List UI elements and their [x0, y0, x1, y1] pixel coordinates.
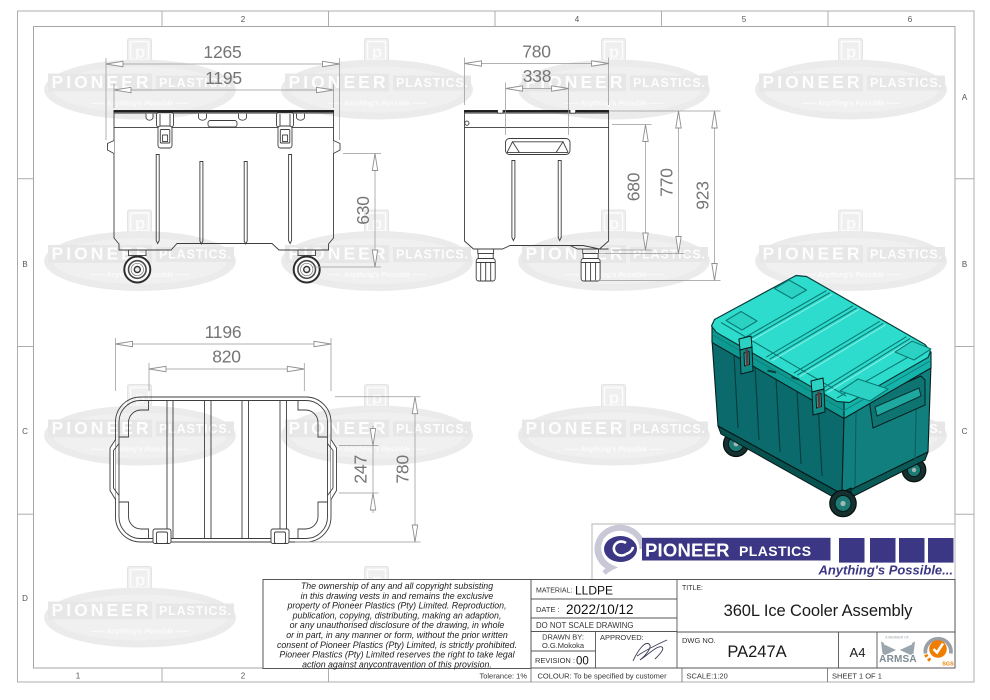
svg-text:2: 2: [241, 15, 246, 24]
svg-text:PIONEER: PIONEER: [645, 540, 730, 561]
svg-text:MATERIAL:: MATERIAL:: [536, 588, 572, 595]
svg-text:2022/10/12: 2022/10/12: [566, 602, 634, 617]
svg-text:780: 780: [522, 42, 551, 62]
svg-text:action against anycontraventio: action against anycontravention of this …: [302, 659, 492, 669]
svg-text:1196: 1196: [205, 322, 242, 342]
svg-text:APPROVED:: APPROVED:: [600, 633, 644, 642]
svg-text:A4: A4: [850, 645, 866, 660]
svg-text:Anything's Possible...: Anything's Possible...: [817, 563, 953, 578]
svg-text:TITLE:: TITLE:: [682, 585, 703, 592]
svg-text:820: 820: [212, 347, 241, 367]
svg-text:680: 680: [624, 172, 644, 201]
svg-text:DATE :: DATE :: [536, 605, 560, 614]
svg-text:publication, copying, distribu: publication, copying, distributing, maki…: [292, 610, 502, 620]
svg-text:D: D: [22, 594, 28, 603]
svg-text:4: 4: [575, 15, 580, 24]
svg-text:923: 923: [693, 181, 713, 210]
svg-text:1: 1: [76, 672, 81, 681]
svg-text:C: C: [962, 427, 968, 436]
svg-text:or any unauthorised disclosure: or any unauthorised disclosure of the dr…: [290, 620, 505, 630]
svg-text:property of Pioneer Plastics (: property of Pioneer Plastics (Pty) Limit…: [286, 601, 506, 611]
svg-text:in this drawing vests in and r: in this drawing vests in and remains the…: [301, 591, 494, 601]
svg-text:770: 770: [657, 168, 677, 197]
svg-text:PLASTICS: PLASTICS: [739, 543, 811, 559]
svg-text:O.G.Mokoka: O.G.Mokoka: [542, 641, 585, 650]
svg-text:Pioneer Plastics (Pty) Limited: Pioneer Plastics (Pty) Limited reserves …: [279, 650, 515, 660]
svg-text:REVISION :: REVISION :: [535, 656, 575, 665]
svg-text:ARMSA: ARMSA: [879, 654, 917, 665]
svg-text:B: B: [962, 260, 967, 269]
svg-text:B: B: [22, 260, 27, 269]
svg-text:2: 2: [241, 672, 246, 681]
svg-text:A MEMBER OF :: A MEMBER OF :: [885, 636, 910, 640]
svg-text:COLOUR: To be specified by cus: COLOUR: To be specified by customer: [538, 672, 668, 681]
svg-text:338: 338: [523, 66, 552, 86]
svg-text:247: 247: [351, 455, 371, 484]
svg-text:DWG NO.: DWG NO.: [682, 636, 716, 645]
svg-text:630: 630: [353, 196, 373, 225]
svg-text:360L Ice Cooler Assembly: 360L Ice Cooler Assembly: [724, 602, 914, 620]
svg-text:DO NOT SCALE DRAWING: DO NOT SCALE DRAWING: [536, 621, 633, 630]
svg-text:6: 6: [908, 15, 913, 24]
svg-text:PA247A: PA247A: [727, 643, 786, 661]
svg-text:A: A: [962, 93, 968, 102]
svg-text:The ownership of any and all c: The ownership of any and all copyright s…: [301, 581, 493, 591]
svg-text:1195: 1195: [205, 68, 242, 88]
svg-text:00: 00: [576, 656, 589, 668]
svg-text:780: 780: [393, 455, 413, 484]
svg-text:Tolerance: 1%: Tolerance: 1%: [479, 672, 527, 681]
svg-text:or in part, in any manner or f: or in part, in any manner or form, witho…: [286, 630, 508, 640]
svg-text:C: C: [22, 427, 28, 436]
svg-text:1265: 1265: [203, 42, 241, 62]
svg-text:SHEET 1 OF 1: SHEET 1 OF 1: [832, 672, 882, 681]
svg-text:5: 5: [742, 15, 747, 24]
svg-text:LLDPE: LLDPE: [575, 584, 613, 598]
svg-text:SCALE:1:20: SCALE:1:20: [687, 672, 728, 681]
svg-text:consent of Pioneer Plastics (P: consent of Pioneer Plastics (Pty) Limite…: [277, 640, 517, 650]
svg-text:SGS: SGS: [942, 662, 954, 668]
